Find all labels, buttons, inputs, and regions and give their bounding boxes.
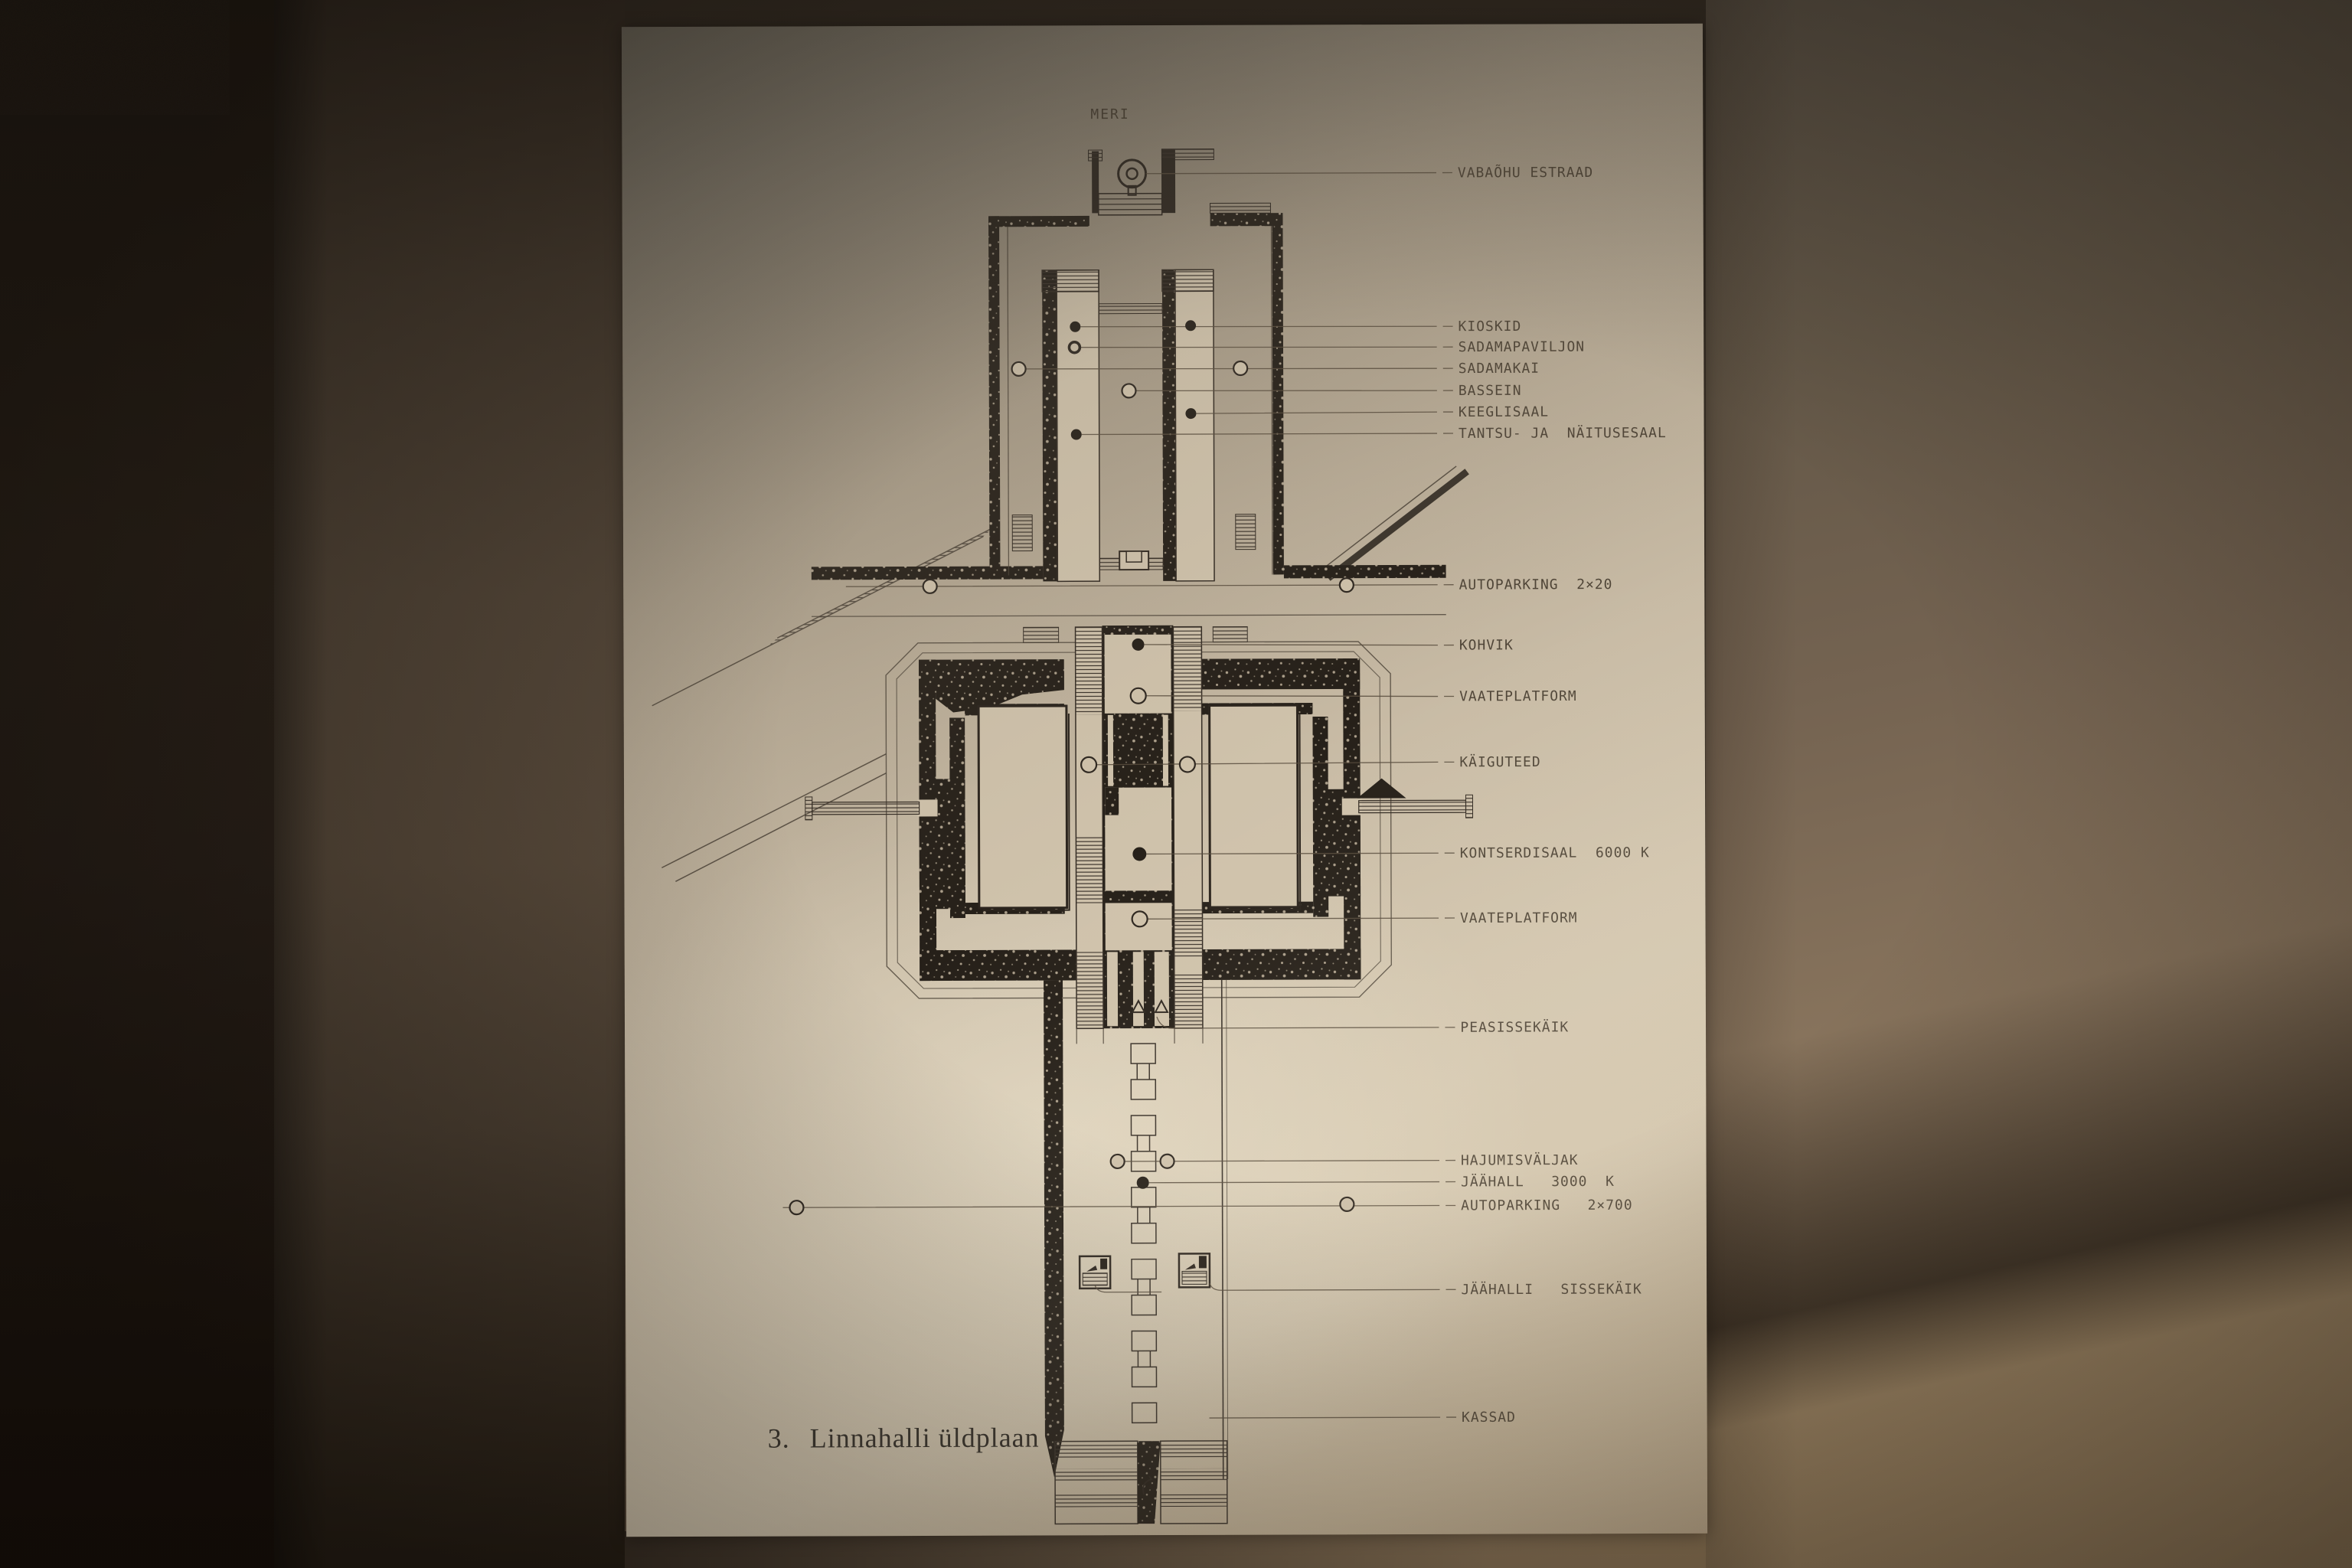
callout-label: VAATEPLATFORM	[1460, 910, 1578, 926]
callout-label: SADAMAKAI	[1459, 361, 1540, 377]
photo-of-plan-poster: MERI VABAÕHU ESTRAAD KIOSKID SADAMAPAVIL…	[0, 0, 2352, 1568]
callout-label: JÄÄHALL 3000 K	[1461, 1174, 1615, 1191]
figure-title: Linnahalli üldplaan	[810, 1423, 1040, 1454]
callout-label: AUTOPARKING 2×20	[1459, 577, 1613, 593]
harbor-basin	[988, 213, 1284, 581]
callout-label: KIOSKID	[1459, 318, 1522, 335]
callout-label: TANTSU- JA NÄITUSESAAL	[1459, 425, 1667, 442]
callout-label: KÄIGUTEED	[1459, 754, 1540, 770]
site-plan-drawing: MERI VABAÕHU ESTRAAD KIOSKID SADAMAPAVIL…	[622, 24, 1707, 1537]
callout-label: KASSAD	[1462, 1410, 1516, 1426]
callout-label: VABAÕHU ESTRAAD	[1458, 164, 1593, 181]
poster: MERI VABAÕHU ESTRAAD KIOSKID SADAMAPAVIL…	[622, 24, 1707, 1537]
callout-label: VAATEPLATFORM	[1459, 688, 1577, 704]
callout-label: PEASISSEKÄIK	[1460, 1019, 1569, 1035]
wall-left-dark	[0, 0, 274, 1568]
callout-label: AUTOPARKING 2×700	[1461, 1197, 1633, 1214]
callout-label: JÄÄHALLI SISSEKÄIK	[1461, 1282, 1641, 1298]
callout-label: KOHVIK	[1459, 637, 1514, 653]
figure-number: 3.	[768, 1423, 790, 1454]
wall-left	[274, 0, 625, 1568]
sea-label: MERI	[1090, 106, 1129, 122]
open-air-stage	[1089, 149, 1271, 215]
ice-rink-strip	[1044, 980, 1228, 1524]
wall-right	[1706, 0, 2352, 1568]
callout-label: SADAMAPAVILJON	[1459, 339, 1586, 356]
callout-label: BASSEIN	[1459, 383, 1522, 399]
callout-label: KEEGLISAAL	[1459, 404, 1549, 420]
wall-below-poster	[625, 1531, 1706, 1568]
figure-caption: 3.Linnahalli üldplaan	[768, 1422, 1040, 1455]
callout-label: KONTSERDISAAL 6000 K	[1460, 844, 1650, 861]
callout-label: HAJUMISVÄLJAK	[1461, 1152, 1579, 1168]
